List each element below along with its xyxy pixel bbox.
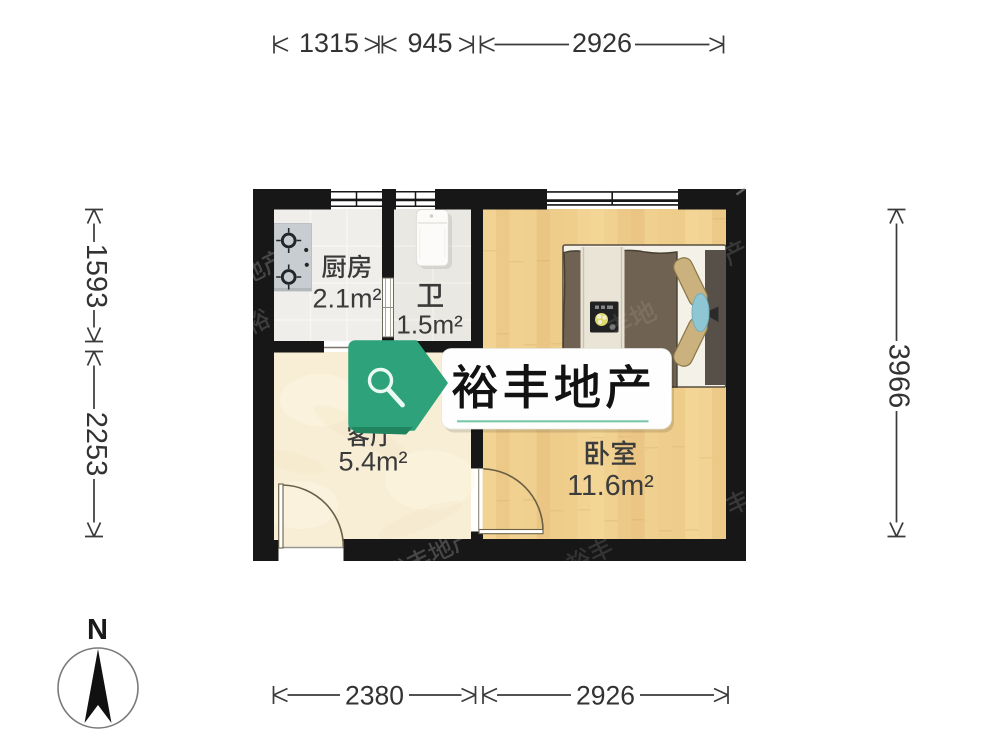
svg-text:1593: 1593 — [80, 244, 112, 309]
svg-text:2380: 2380 — [345, 681, 404, 711]
svg-text:11.6m²: 11.6m² — [567, 470, 654, 502]
svg-text:5.4m²: 5.4m² — [338, 447, 407, 477]
svg-text:2926: 2926 — [572, 28, 632, 58]
svg-text:2.1m²: 2.1m² — [312, 284, 381, 314]
svg-text:3966: 3966 — [883, 344, 915, 409]
svg-text:2926: 2926 — [576, 681, 635, 711]
svg-text:945: 945 — [407, 28, 452, 58]
svg-text:N: N — [87, 614, 108, 646]
svg-text:1315: 1315 — [299, 28, 359, 58]
svg-text:1.5m²: 1.5m² — [396, 309, 463, 339]
svg-text:2253: 2253 — [80, 412, 112, 477]
